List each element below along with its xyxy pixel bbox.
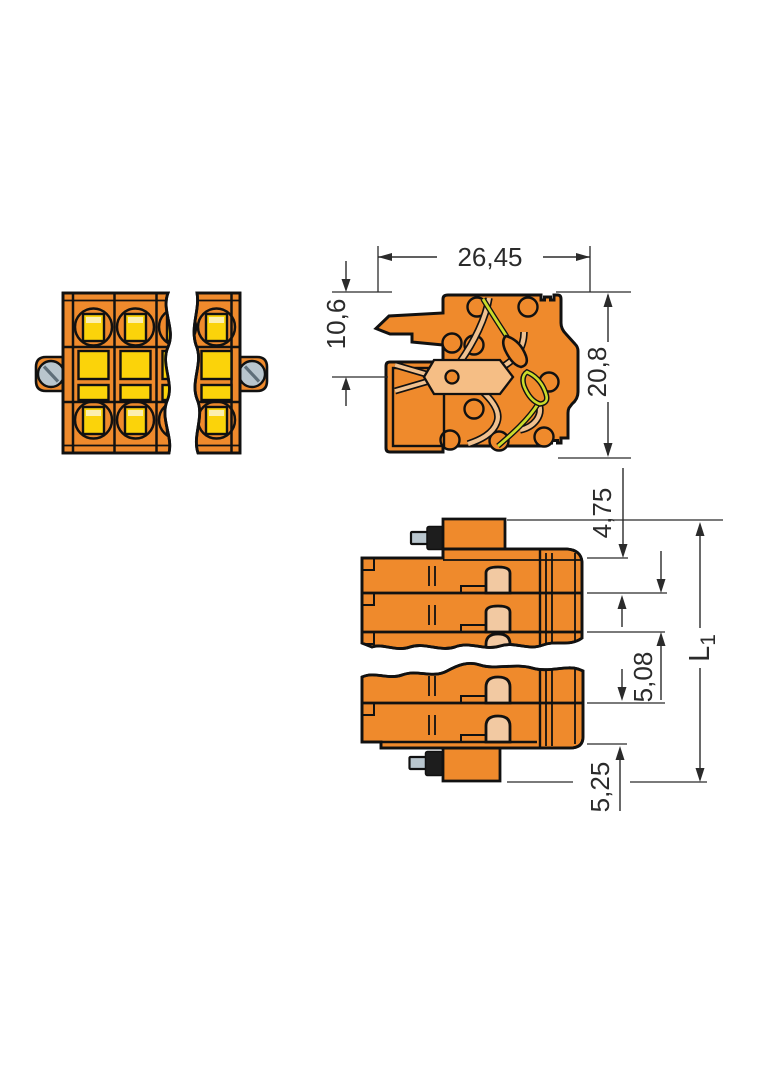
dimension-label-total-height: 20,8 [582,347,612,398]
dimension-label-width: 26,45 [457,242,522,272]
left-flange-tab [36,357,64,391]
dimension-label-flange-bottom: 5,25 [585,762,615,813]
top-screw-knurl [427,527,444,550]
technical-drawing-page: 26,45 10,6 20,8 [0,0,784,1066]
bottom-screw-knurl [426,752,443,776]
bottom-screw-shaft [410,757,427,769]
busbar-plate [424,360,513,394]
side-body-upper [362,549,582,649]
front-view [36,293,267,453]
dimension-label-flange-top: 4,75 [587,488,617,539]
right-flange-tab [239,357,267,391]
connector-dimension-drawing: 26,45 10,6 20,8 [0,0,784,1066]
contact-openings-upper [486,567,510,648]
section-view: 26,45 10,6 20,8 [321,242,631,458]
dimension-label-total-length: L1 [684,634,720,662]
dimension-label-wire-entry-height: 10,6 [321,299,351,350]
top-screw-shaft [411,532,428,544]
bottom-fixing-flange [410,748,501,781]
dimension-label-pitch: 5,08 [628,652,658,703]
top-fixing-flange [411,519,505,550]
side-view: 4,75 5,08 5,25 L1 [362,468,723,812]
